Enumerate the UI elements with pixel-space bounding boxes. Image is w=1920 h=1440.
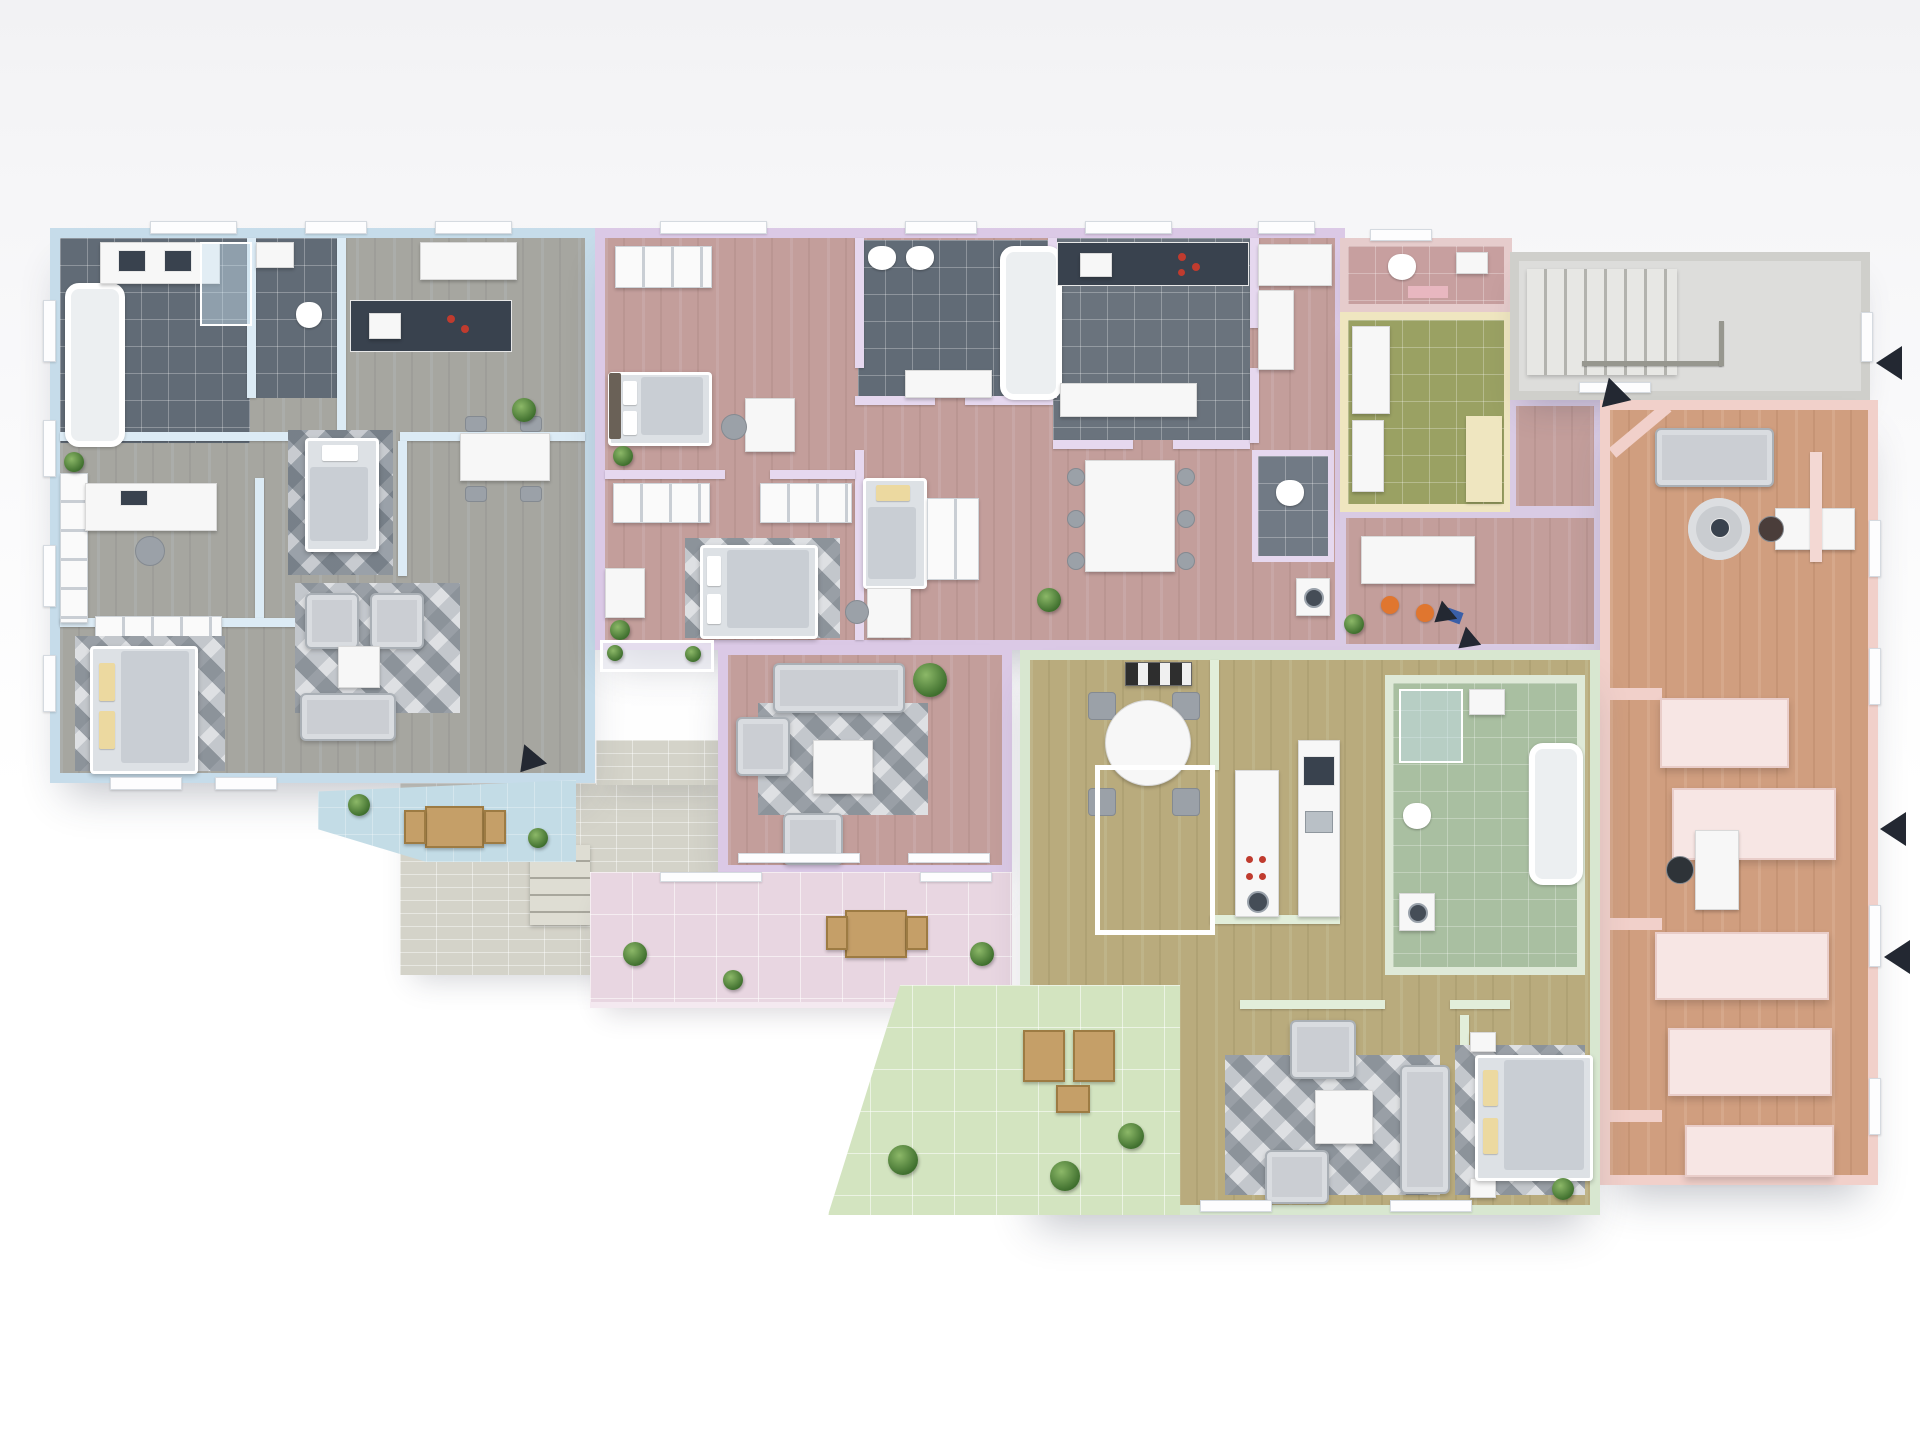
dining-chair — [1067, 552, 1085, 570]
balcony-table — [425, 806, 484, 848]
doormat — [1200, 1200, 1272, 1212]
window — [660, 221, 767, 234]
cooktop-burner — [1178, 269, 1185, 276]
unit-purple — [595, 228, 1345, 650]
desk — [605, 568, 645, 618]
sofa — [1655, 428, 1774, 487]
cooktop-burner — [1246, 873, 1253, 880]
terrace-chair — [826, 916, 848, 950]
window — [1085, 221, 1172, 234]
terrace-table — [845, 910, 907, 958]
wall — [1250, 368, 1259, 443]
staircase-hall — [1510, 252, 1870, 400]
window — [1869, 1078, 1881, 1135]
window — [1869, 905, 1881, 967]
armchair — [370, 593, 424, 649]
stair-railing — [1582, 361, 1722, 366]
office-chair — [1758, 516, 1784, 542]
window — [43, 300, 56, 362]
window — [215, 777, 277, 790]
toilet — [1388, 254, 1416, 280]
wall-stub — [1610, 688, 1662, 700]
kitchen-counter — [1298, 740, 1340, 917]
bathtub — [1529, 743, 1583, 885]
sofa — [300, 693, 396, 741]
plant — [970, 942, 994, 966]
vanity — [905, 370, 992, 398]
wardrobe — [615, 246, 712, 288]
kids-bed — [863, 478, 927, 589]
window — [1258, 221, 1315, 234]
desk — [1695, 830, 1739, 910]
terrace-green — [828, 985, 1180, 1215]
plant — [512, 398, 536, 422]
doormat — [920, 872, 992, 882]
window — [905, 221, 977, 234]
walk-in-shower — [200, 242, 252, 326]
doormat — [1390, 1200, 1472, 1212]
partition-wall — [1810, 452, 1822, 562]
corridor-tint — [1516, 406, 1594, 506]
cooktop-burner — [1259, 873, 1266, 880]
window — [305, 221, 367, 234]
window — [1869, 520, 1881, 577]
entry-opening — [1861, 312, 1873, 362]
sink — [1469, 689, 1505, 715]
balcony-blue — [318, 780, 576, 862]
wardrobe — [927, 498, 979, 580]
single-bed — [305, 438, 379, 552]
plant — [913, 663, 947, 697]
kitchen-sink — [369, 313, 401, 339]
wall — [770, 470, 855, 479]
bathroom-yellow — [1340, 312, 1512, 512]
plant — [888, 1145, 918, 1175]
shower-column — [1352, 326, 1390, 414]
storage-block — [1668, 1028, 1832, 1096]
unit-purple-living — [718, 645, 1012, 875]
coffee-table — [1315, 1090, 1373, 1144]
cooktop-burner — [1259, 856, 1266, 863]
plant — [723, 970, 743, 990]
wc-sink — [256, 242, 294, 268]
sink-basin — [164, 250, 192, 272]
sink-basin — [118, 250, 146, 272]
storage-block — [1655, 932, 1829, 1000]
balcony-chair — [404, 810, 426, 844]
plant — [64, 452, 84, 472]
sink-cabinet — [1352, 420, 1384, 492]
bidet — [906, 246, 934, 270]
window — [1869, 648, 1881, 705]
plant — [528, 828, 548, 848]
office-chair — [1666, 856, 1694, 884]
wall — [1053, 440, 1133, 449]
side-table — [1710, 518, 1730, 538]
plant — [607, 645, 623, 661]
wall-stub — [1610, 918, 1662, 930]
terrace-chair — [1073, 1030, 1115, 1082]
play-mat — [1095, 765, 1215, 935]
doormat — [660, 872, 762, 882]
toilet — [1276, 480, 1304, 506]
wall-cabinet — [420, 242, 517, 280]
armchair — [1265, 1150, 1329, 1204]
storage-block — [1660, 698, 1789, 768]
sideboard — [1125, 662, 1192, 686]
storage-cabinet — [1258, 290, 1294, 370]
dining-chair — [520, 486, 542, 502]
plant — [1552, 1178, 1574, 1200]
toilet — [1403, 803, 1431, 829]
shower — [1399, 689, 1463, 763]
corridor-vanity — [1340, 512, 1600, 650]
dining-chair — [1088, 692, 1116, 720]
window — [43, 420, 56, 477]
cooktop-burner — [1178, 253, 1186, 261]
bathroom-green — [1385, 675, 1585, 975]
wc-room — [1252, 450, 1334, 562]
bathtub — [1000, 246, 1062, 400]
dining-chair — [1067, 468, 1085, 486]
dining-chair — [465, 416, 487, 432]
oven — [1303, 756, 1335, 786]
stool-orange — [1416, 604, 1434, 622]
patio-walkway — [596, 740, 730, 785]
coffee-table — [338, 646, 380, 688]
bench — [1466, 416, 1502, 502]
office-chair — [845, 600, 869, 624]
terrace-door — [738, 853, 860, 863]
sofa — [773, 663, 905, 713]
terrace-table — [1056, 1085, 1090, 1113]
plant — [613, 446, 633, 466]
sofa — [1400, 1065, 1450, 1194]
office-chair — [721, 414, 747, 440]
monitor — [120, 490, 148, 506]
vanity-counter — [1361, 536, 1475, 584]
desk — [867, 588, 911, 638]
coffee-table — [813, 740, 873, 794]
kitchen-sink — [1080, 253, 1112, 277]
wall — [1210, 660, 1219, 770]
wardrobe — [613, 483, 710, 523]
bush — [1050, 1161, 1080, 1191]
bathtub — [65, 283, 125, 447]
kitchen-counter — [1057, 242, 1249, 286]
staircase — [1527, 269, 1677, 375]
kitchen-island — [1235, 770, 1279, 917]
double-bed — [1475, 1055, 1593, 1181]
dining-table — [1085, 460, 1175, 572]
desk — [745, 398, 795, 452]
window — [1370, 229, 1432, 241]
kitchen-counter — [350, 300, 512, 352]
wall — [855, 238, 864, 368]
unit-blue — [50, 228, 595, 783]
window — [435, 221, 512, 234]
wall — [1450, 1000, 1510, 1009]
terrace-chair — [906, 916, 928, 950]
cooktop-burner — [1246, 856, 1253, 863]
dining-chair — [1177, 468, 1195, 486]
french-balcony — [600, 640, 714, 672]
plant — [1344, 614, 1364, 634]
wall — [1240, 1000, 1385, 1009]
armchair — [305, 593, 359, 649]
plant — [685, 646, 701, 662]
desk — [85, 483, 217, 531]
window — [150, 221, 237, 234]
dining-chair — [465, 486, 487, 502]
plant — [623, 942, 647, 966]
storage-cabinet — [1258, 244, 1332, 286]
floor-plan-canvas — [0, 0, 1920, 1440]
stool-orange — [1381, 596, 1399, 614]
cooktop-burner — [1192, 263, 1200, 271]
wall — [1173, 440, 1250, 449]
plant — [1037, 588, 1061, 612]
sink-basin — [1305, 811, 1333, 833]
double-bed — [90, 646, 198, 774]
entrance-arrow — [1880, 812, 1906, 846]
wardrobe — [760, 483, 852, 523]
wall — [398, 441, 407, 576]
plant — [1118, 1123, 1144, 1149]
sink — [1456, 252, 1488, 274]
dining-chair — [1067, 510, 1085, 528]
wall — [605, 470, 725, 479]
plant — [610, 620, 630, 640]
nightstand — [1470, 1032, 1496, 1052]
wc-rose — [1340, 238, 1512, 312]
shelf-unit — [60, 473, 88, 623]
office-chair — [135, 536, 165, 566]
cooktop-burner — [461, 325, 469, 333]
balcony-chair — [484, 810, 506, 844]
washing-machine — [1399, 893, 1435, 931]
toilet — [296, 302, 322, 328]
double-bed — [608, 372, 712, 446]
plant — [348, 794, 370, 816]
dining-chair — [1177, 510, 1195, 528]
nightstand — [1470, 1178, 1496, 1198]
dining-table — [460, 433, 550, 481]
toilet — [868, 246, 896, 270]
wall-stub — [1610, 1110, 1662, 1122]
cooktop-burner — [447, 315, 455, 323]
window — [43, 545, 56, 607]
bath-mat — [1408, 286, 1448, 298]
wall — [337, 238, 346, 432]
armchair — [736, 717, 790, 776]
terrace-chair — [1023, 1030, 1065, 1082]
entrance-arrow — [1884, 940, 1910, 974]
window — [43, 655, 56, 712]
terrace-door — [908, 853, 990, 863]
dining-chair — [1177, 552, 1195, 570]
armchair — [1290, 1020, 1356, 1079]
unit-salmon — [1600, 400, 1878, 1185]
entrance-arrow — [1876, 346, 1902, 380]
wall — [255, 478, 264, 620]
stair-railing — [1719, 321, 1724, 366]
window — [110, 777, 182, 790]
corridor-upper — [1510, 400, 1600, 512]
kitchen-island — [1060, 383, 1197, 417]
double-bed — [700, 545, 818, 639]
washing-machine — [1296, 578, 1330, 616]
storage-block — [1685, 1125, 1834, 1177]
